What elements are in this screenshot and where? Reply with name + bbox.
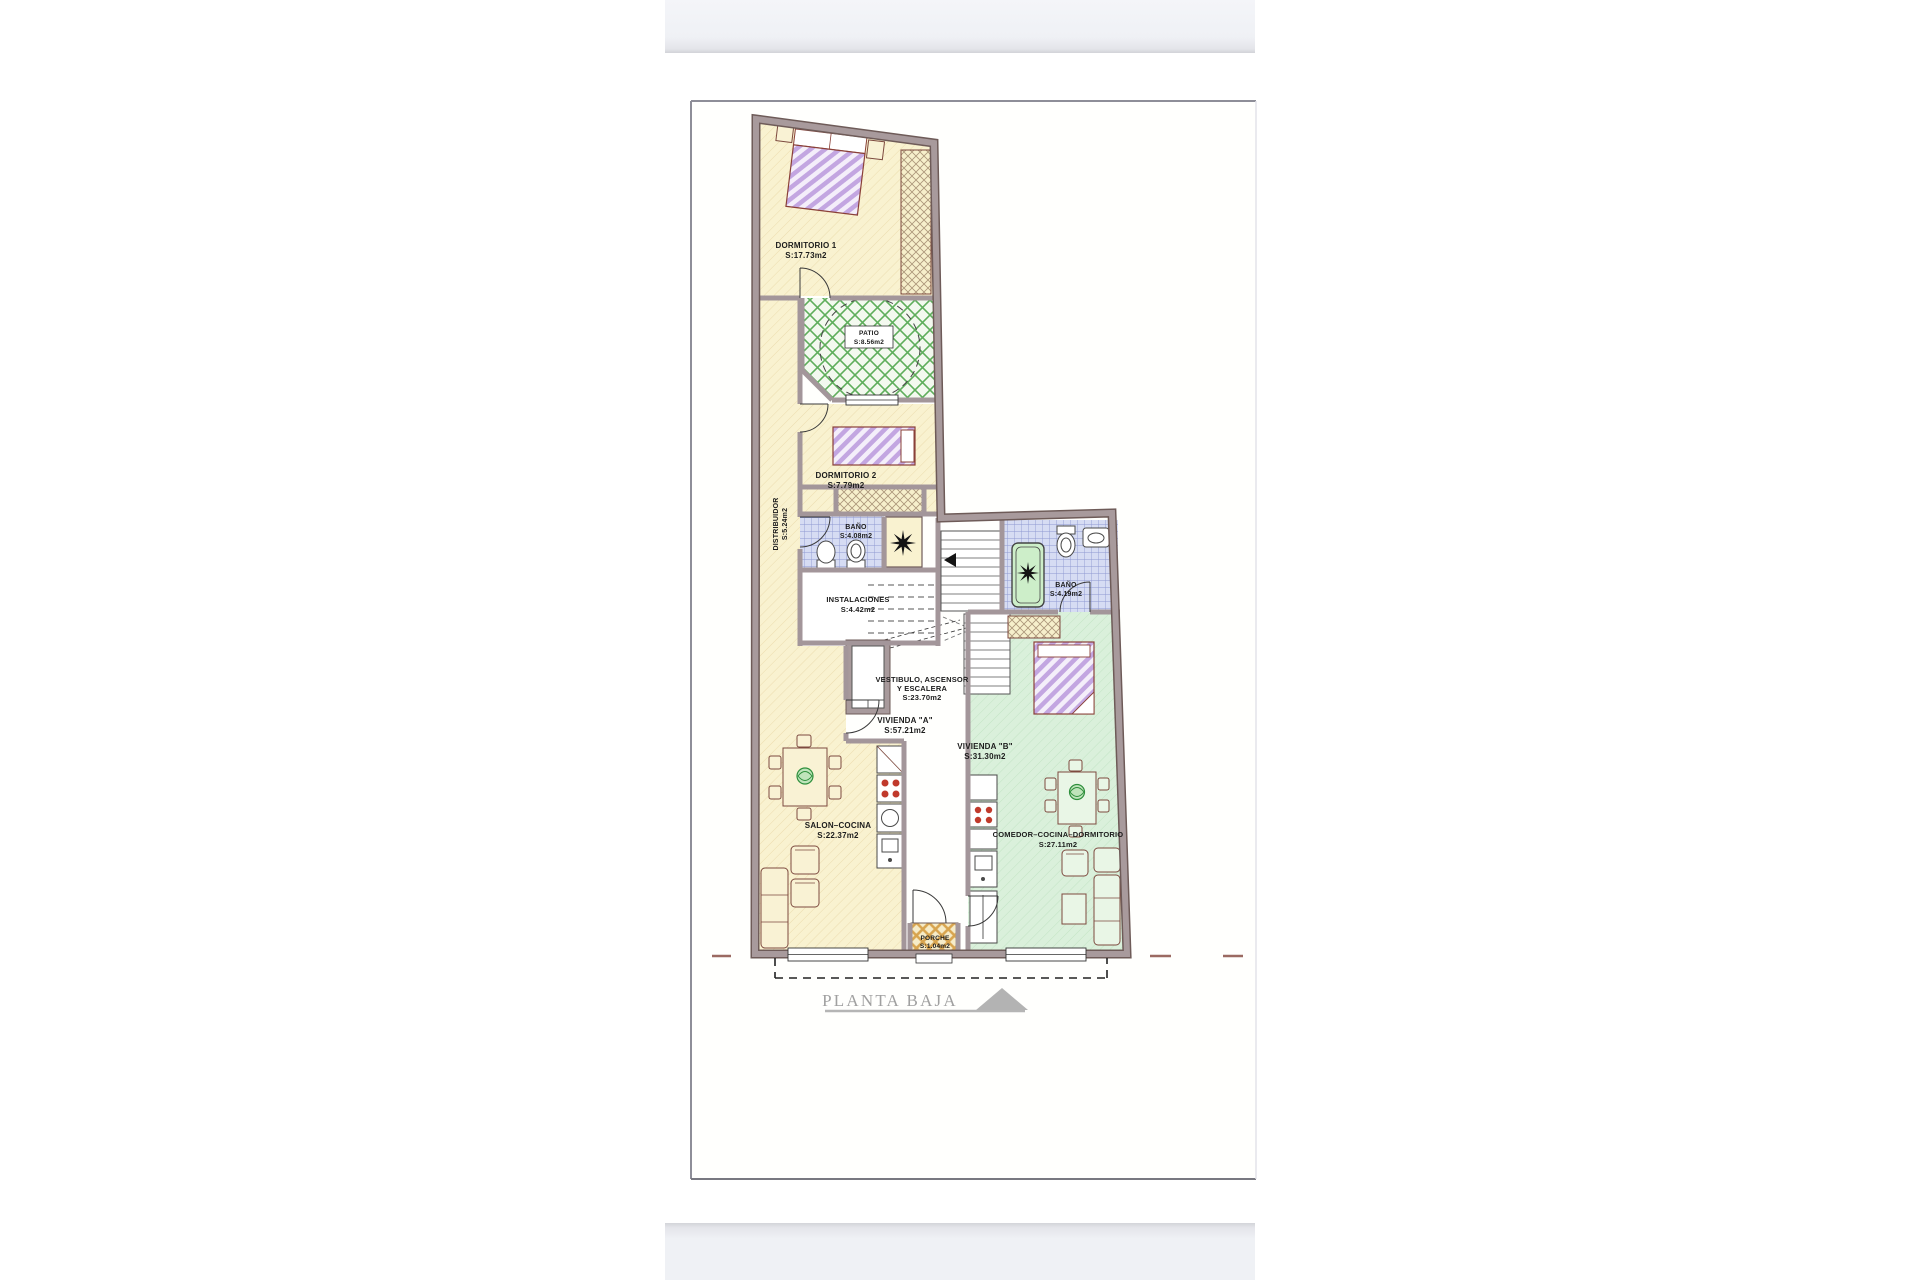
vestibulo-area: S:23.70m2 — [903, 693, 942, 702]
patio-window — [846, 395, 898, 405]
room-bano-a — [800, 514, 884, 570]
patio-label: PATIO — [859, 330, 879, 337]
instalaciones-label: INSTALACIONES — [826, 595, 889, 604]
comedor-label: COMEDOR–COCINA–DORMITORIO — [993, 830, 1124, 839]
dormitorio-2-label: DORMITORIO 2 — [816, 471, 877, 480]
vivienda-a-area: S:57.21m2 — [884, 726, 926, 735]
distribuidor-area: S:5.24m2 — [782, 508, 789, 540]
bano-b-area: S:4.19m2 — [1050, 591, 1082, 598]
patio-area: S:8.56m2 — [854, 339, 884, 346]
dormitorio-1-label: DORMITORIO 1 — [776, 241, 837, 250]
plan-title: PLANTA BAJA — [822, 991, 958, 1010]
closet-dormitorio-2 — [836, 489, 924, 513]
kitchen-a — [877, 746, 903, 868]
vestibulo-label-2: Y ESCALERA — [897, 684, 948, 693]
dormitorio-2-area: S:7.79m2 — [828, 481, 865, 490]
wardrobe-dormitorio-1 — [901, 150, 931, 294]
bed-vivienda-b — [1034, 642, 1094, 714]
vivienda-b-area: S:31.30m2 — [964, 752, 1006, 761]
plant-icon — [797, 768, 813, 784]
extractor-fan-icon — [890, 530, 916, 556]
stair-flight-lower — [964, 614, 1010, 694]
window — [1006, 948, 1086, 961]
porche-step — [916, 954, 952, 963]
floor-plan: DORMITORIO 1 S:17.73m2 PATIO S:8.56m2 DO… — [0, 0, 1920, 1280]
bano-a-label: BAÑO — [845, 522, 867, 531]
window — [788, 948, 868, 961]
wardrobe-vivienda-b — [1008, 616, 1060, 638]
dormitorio-1-area: S:17.73m2 — [785, 251, 827, 260]
bed-dormitorio-2 — [833, 427, 915, 465]
instalaciones-area: S:4.42m2 — [841, 605, 876, 614]
vivienda-a-label: VIVIENDA "A" — [877, 716, 932, 725]
porche-area: S:1.04m2 — [920, 943, 950, 950]
salon-cocina-label: SALON–COCINA — [805, 821, 871, 830]
bano-b-label: BAÑO — [1055, 580, 1077, 589]
distribuidor-label: DISTRIBUIDOR — [773, 498, 780, 551]
extractor-fan-icon — [1017, 562, 1039, 584]
stair-flight-upper — [941, 531, 1002, 611]
comedor-area: S:27.11m2 — [1039, 840, 1078, 849]
kitchen-b — [970, 775, 997, 943]
room-patio — [802, 298, 936, 400]
bano-a-area: S:4.08m2 — [840, 533, 872, 540]
plant-icon — [1070, 785, 1085, 800]
vivienda-b-label: VIVIENDA "B" — [957, 742, 1012, 751]
screenshot-stage: DORMITORIO 1 S:17.73m2 PATIO S:8.56m2 DO… — [0, 0, 1920, 1280]
porche-label: PORCHE — [920, 935, 949, 942]
salon-cocina-area: S:22.37m2 — [817, 831, 859, 840]
vestibulo-label-1: VESTIBULO, ASCENSOR — [875, 675, 968, 684]
